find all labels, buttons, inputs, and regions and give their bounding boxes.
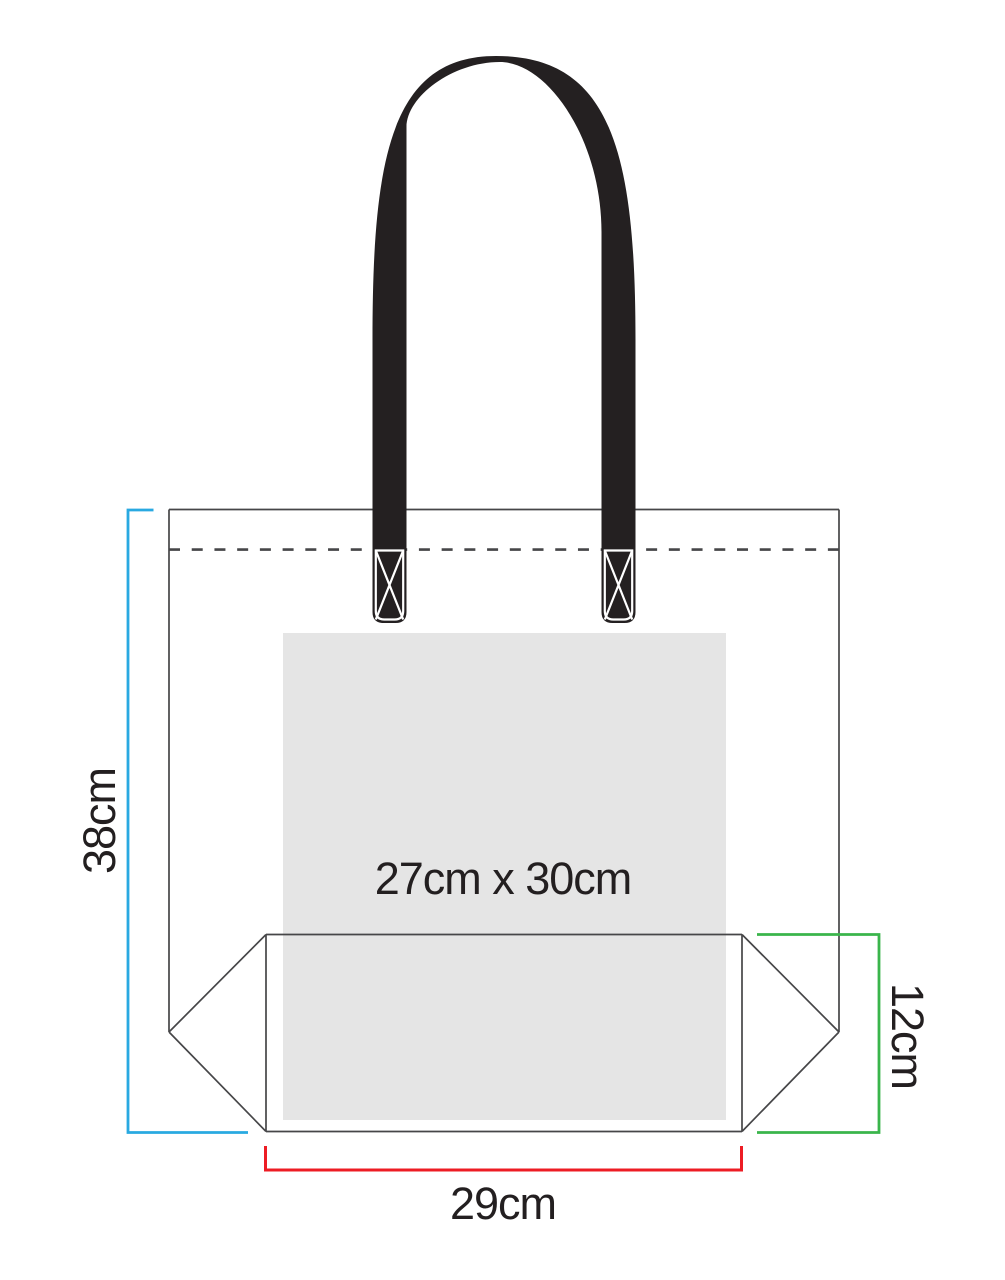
svg-text:29cm: 29cm [450, 1178, 556, 1229]
svg-text:38cm: 38cm [74, 768, 125, 874]
svg-text:27cm x 30cm: 27cm x 30cm [375, 853, 632, 904]
svg-text:12cm: 12cm [882, 983, 933, 1089]
